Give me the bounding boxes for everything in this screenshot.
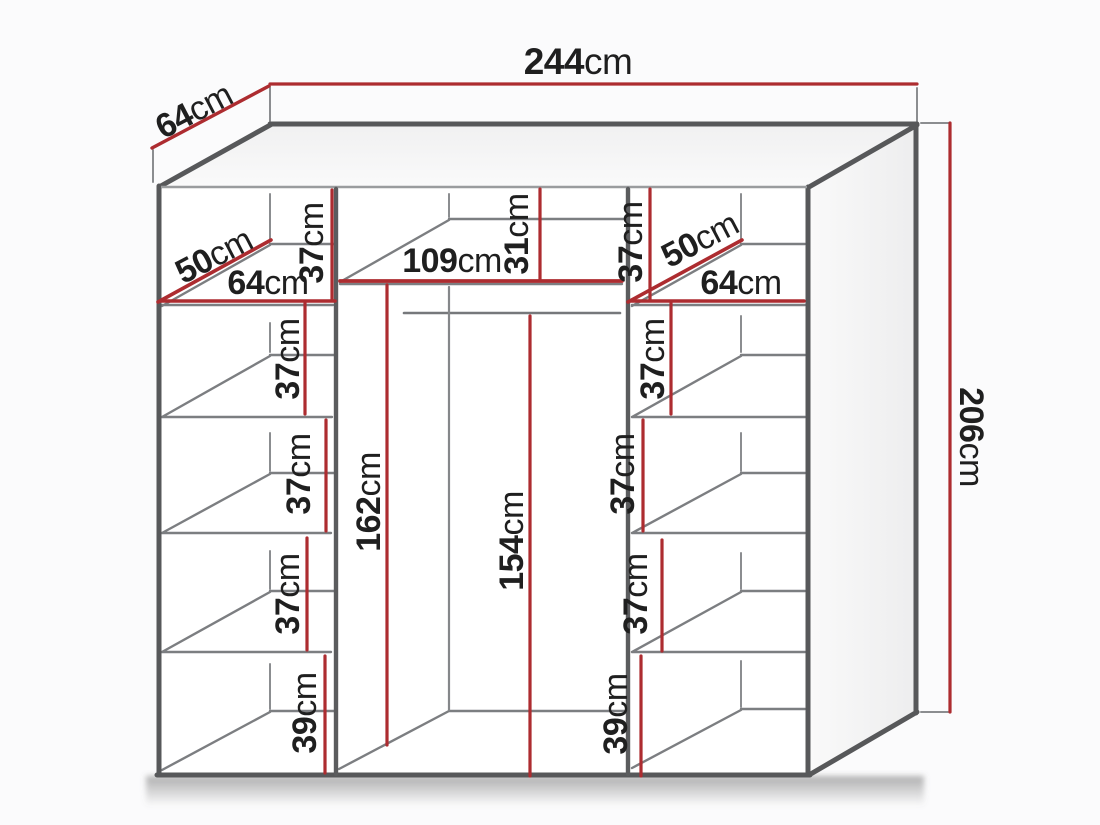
label-right-shelf-width: 64cm — [700, 264, 781, 302]
label-rail-to-floor-height: 154cm — [493, 491, 531, 591]
cabinet-faces — [159, 124, 917, 775]
right-side-face — [808, 124, 917, 775]
label-total-depth: 64cm — [149, 75, 239, 146]
label-middle-width: 109cm — [402, 242, 502, 280]
label-left-section-1: 37cm — [293, 202, 331, 283]
label-left-section-2: 37cm — [269, 318, 307, 399]
label-right-section-1: 37cm — [612, 201, 650, 282]
label-left-section-3: 37cm — [280, 433, 318, 514]
label-left-section-5: 39cm — [286, 672, 324, 753]
top-face — [159, 124, 917, 187]
label-total-height: 206cm — [952, 387, 990, 487]
label-hanging-space-height: 162cm — [350, 452, 388, 552]
label-right-section-4: 37cm — [617, 553, 655, 634]
label-right-section-2: 37cm — [634, 318, 672, 399]
label-middle-top-section: 31cm — [498, 193, 536, 274]
label-right-section-3: 37cm — [604, 433, 642, 514]
wardrobe-dimension-diagram: 244cm 64cm 206cm 50cm 64cm 37cm 37cm 37c… — [0, 0, 1100, 825]
label-total-width: 244cm — [524, 41, 633, 82]
floor-shadow — [146, 776, 924, 806]
label-right-section-5: 39cm — [597, 673, 635, 754]
label-left-section-4: 37cm — [269, 553, 307, 634]
diagram-canvas: 244cm 64cm 206cm 50cm 64cm 37cm 37cm 37c… — [0, 0, 1100, 825]
